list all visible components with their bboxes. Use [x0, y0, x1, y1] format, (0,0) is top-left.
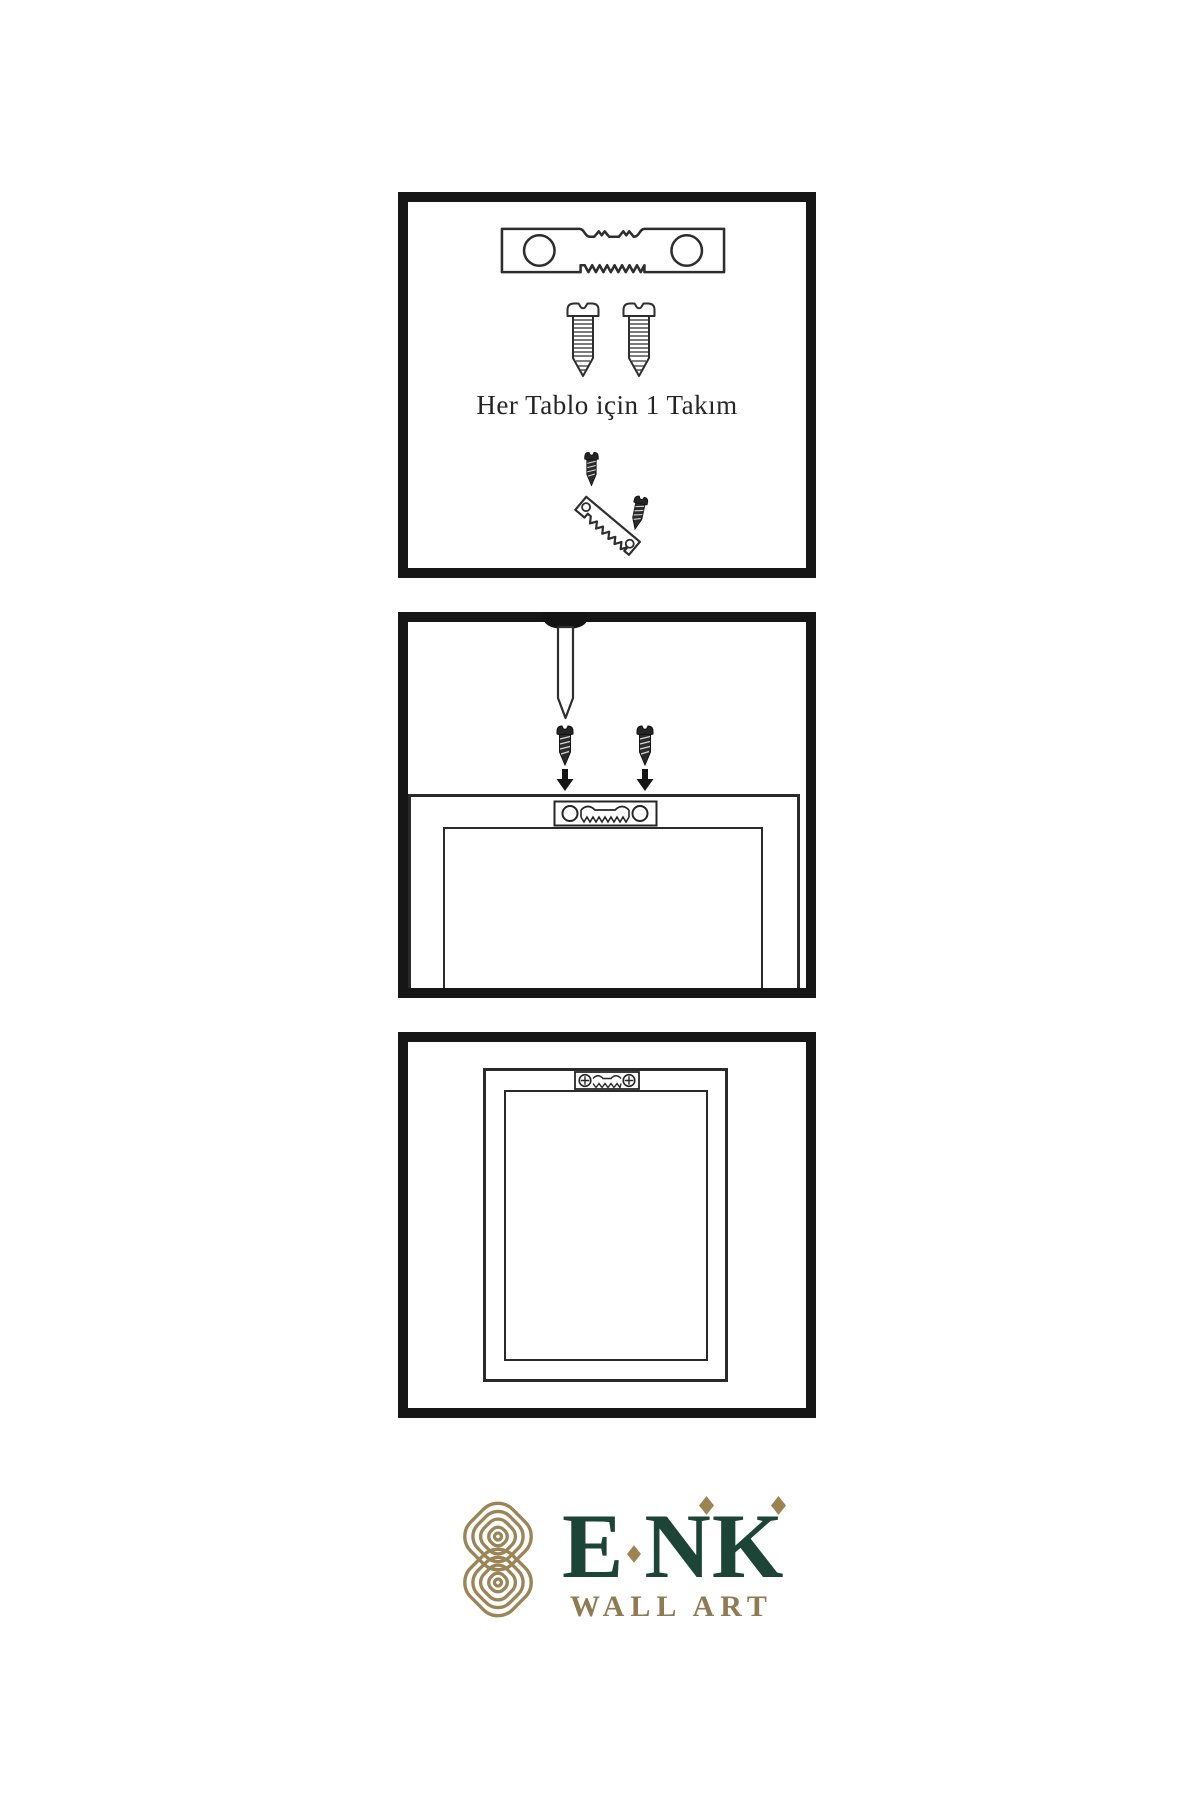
diamond-icon — [771, 1496, 786, 1515]
small-screw-icon — [583, 450, 600, 487]
sawtooth-hanger-icon — [494, 222, 732, 279]
brand-letter-e: E — [562, 1500, 624, 1592]
arrow-down-icon — [556, 769, 574, 791]
knot-logo-icon — [433, 1491, 563, 1628]
sawtooth-hanger-plate-icon — [553, 800, 658, 827]
brand-letter-k: K — [712, 1500, 785, 1592]
mounted-sawtooth-hanger-icon — [574, 1071, 640, 1092]
small-screw-icon — [635, 723, 655, 767]
frame-back-inner-edge — [504, 1090, 708, 1361]
tilted-sawtooth-hanger-icon — [576, 488, 668, 560]
screw-icon — [622, 301, 656, 379]
frame-back-inner-edge — [443, 827, 763, 988]
diamond-icon — [627, 1545, 641, 1563]
step-2-panel — [398, 612, 816, 998]
step-3-panel — [398, 1032, 816, 1418]
step-1-panel: Her Tablo için 1 Takım — [398, 192, 816, 578]
brand-letter-n: N — [644, 1500, 711, 1592]
instruction-sheet: Her Tablo için 1 Takım — [0, 0, 1200, 1800]
brand-subtitle: WALL ART — [570, 1590, 773, 1624]
screw-icon — [566, 301, 600, 379]
arrow-down-icon — [636, 769, 654, 791]
nail-icon — [542, 612, 589, 722]
brand-wordmark: E N K — [562, 1500, 784, 1592]
small-screw-icon — [555, 723, 575, 767]
kit-caption: Her Tablo için 1 Takım — [408, 390, 806, 421]
